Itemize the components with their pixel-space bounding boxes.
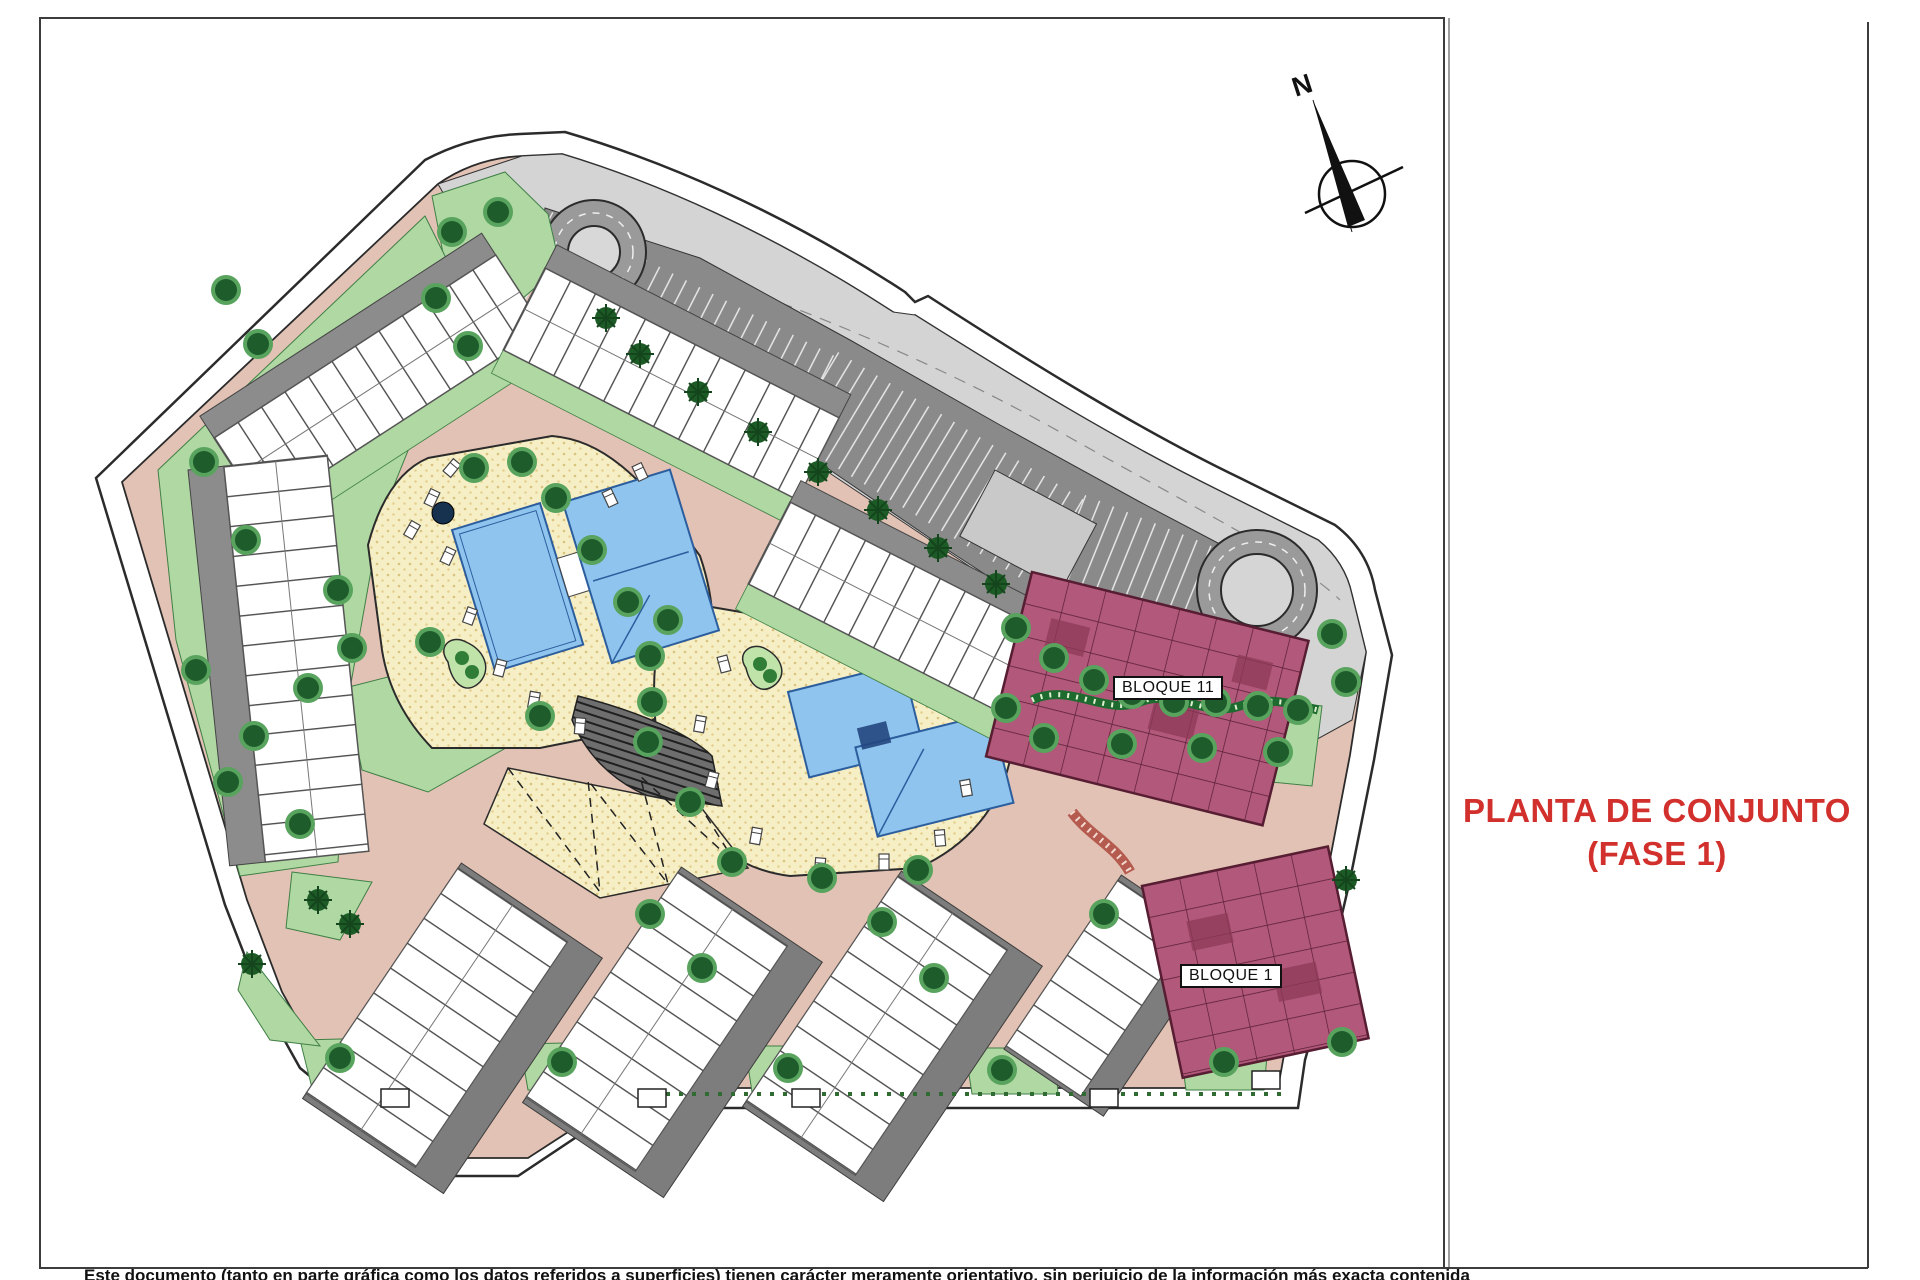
drawing-title-line2: (FASE 1)	[1452, 833, 1862, 876]
site-plan-document: N BLOQUE 11 BLOQUE 1 PLANTA DE CONJUNTO …	[0, 0, 1920, 1280]
planter-round	[432, 502, 454, 524]
bloque-11-label: BLOQUE 11	[1113, 676, 1223, 700]
compass-north-label: N	[1288, 68, 1316, 103]
drawing-title: PLANTA DE CONJUNTO (FASE 1)	[1452, 790, 1862, 876]
site-plan-drawing: N	[0, 0, 1920, 1280]
drawing-title-line1: PLANTA DE CONJUNTO	[1452, 790, 1862, 833]
disclaimer-text: Este documento (tanto en parte gráfica c…	[84, 1266, 1704, 1280]
bloque-1-label: BLOQUE 1	[1180, 964, 1282, 988]
north-compass: N	[1288, 68, 1403, 232]
